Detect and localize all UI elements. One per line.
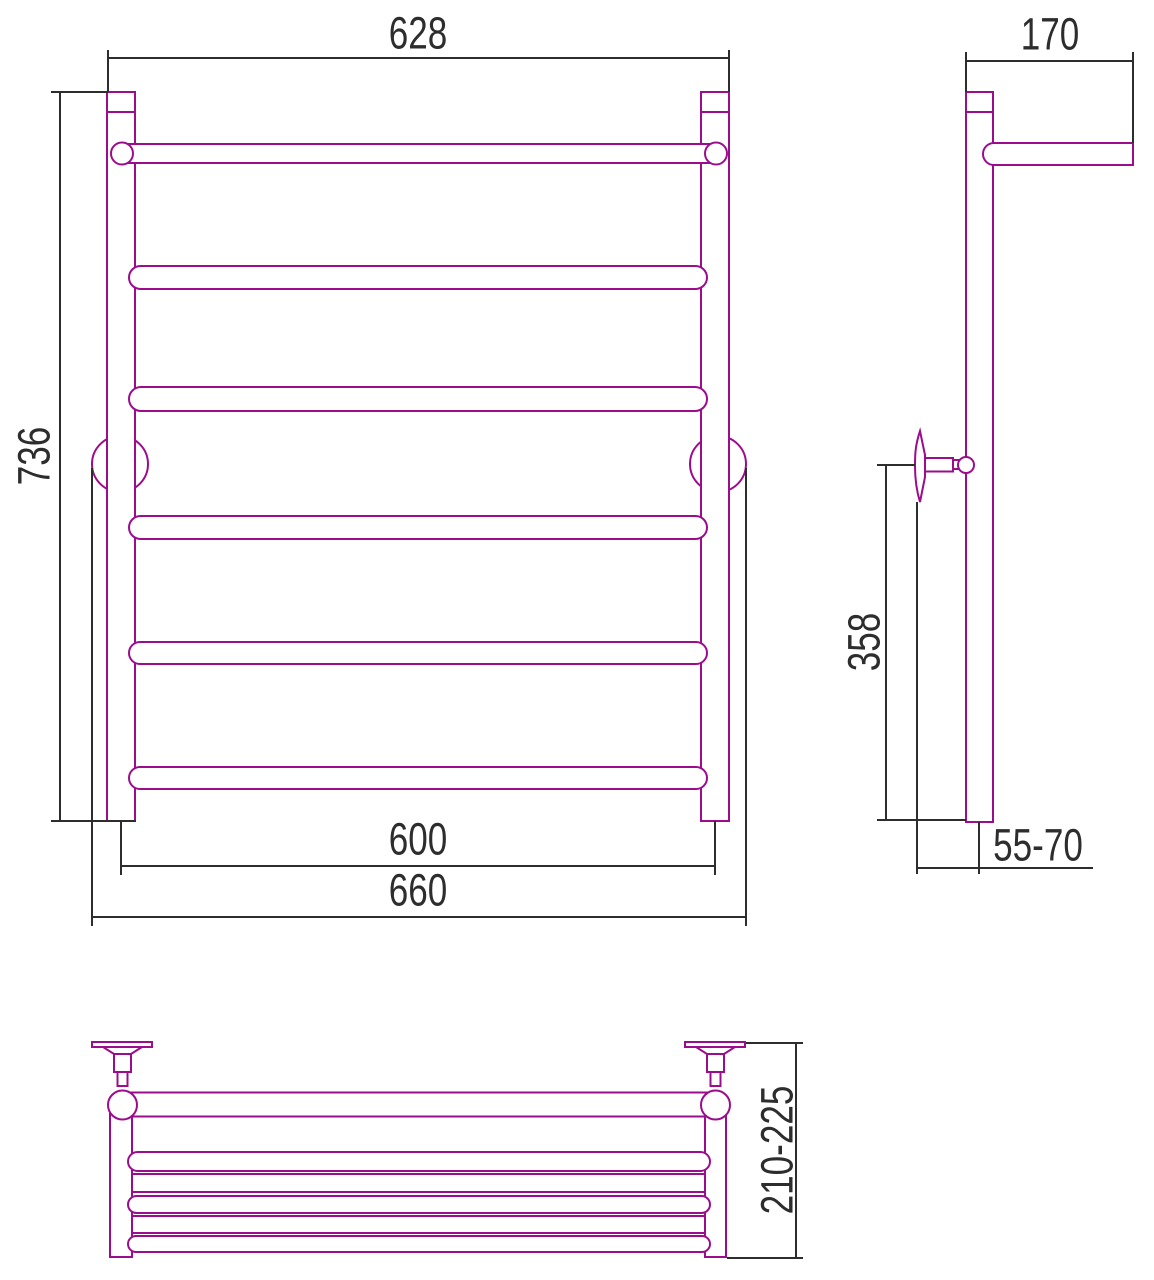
technical-drawing-page: 628 736 600 660 [0,0,1154,1280]
front-bar-3 [129,387,707,411]
plan-bar-4 [128,1196,710,1213]
dim-label-wall-offset: 55-70 [993,819,1083,870]
front-bar-5 [129,642,707,664]
plan-bar-3 [132,1174,705,1192]
plan-right-neck [711,1072,721,1086]
side-bracket-flange [915,431,925,502]
plan-left-neck [118,1072,128,1086]
plan-right-stem [707,1054,724,1072]
plan-right-flange-cone [696,1047,735,1054]
plan-bar-2 [128,1152,710,1171]
front-bar-2 [129,266,707,289]
plan-view: 210-225 [92,1042,803,1258]
dim-label-overall-width: 660 [389,864,448,915]
dim-label-top-width: 628 [389,7,448,58]
plan-right-post [705,1105,726,1257]
dim-label-shelf-depth: 170 [1021,8,1080,59]
plan-dimensions: 210-225 [727,1043,803,1258]
side-bracket-stem [925,458,953,472]
dim-label-overall-depth: 210-225 [751,1086,802,1215]
front-bar-6 [129,767,707,789]
front-shelf-bar [122,144,716,163]
front-right-post [701,92,729,821]
plan-bar-5 [132,1216,705,1233]
plan-right-collar [701,1091,730,1120]
plan-left-stem [114,1054,131,1072]
side-view: 170 358 55-70 [838,8,1133,874]
plan-shelf-bar [122,1093,716,1117]
dim-label-height: 736 [8,427,59,486]
dim-label-rail-width: 600 [389,813,448,864]
front-shelf-bar-right-fitting [705,143,727,165]
side-bracket-knob [958,457,974,473]
front-view: 628 736 600 660 [8,7,746,926]
front-shelf-bar-left-fitting [111,143,133,165]
side-shelf-bar [983,143,1133,165]
front-bar-4 [129,516,707,539]
towel-rail-technical-drawing: 628 736 600 660 [0,0,1154,1280]
plan-left-flange-cone [103,1047,142,1054]
plan-left-post [110,1105,132,1257]
dim-label-bracket-height: 358 [838,613,889,672]
plan-left-collar [108,1091,137,1120]
plan-bar-6 [128,1236,710,1252]
front-left-post [107,92,135,821]
